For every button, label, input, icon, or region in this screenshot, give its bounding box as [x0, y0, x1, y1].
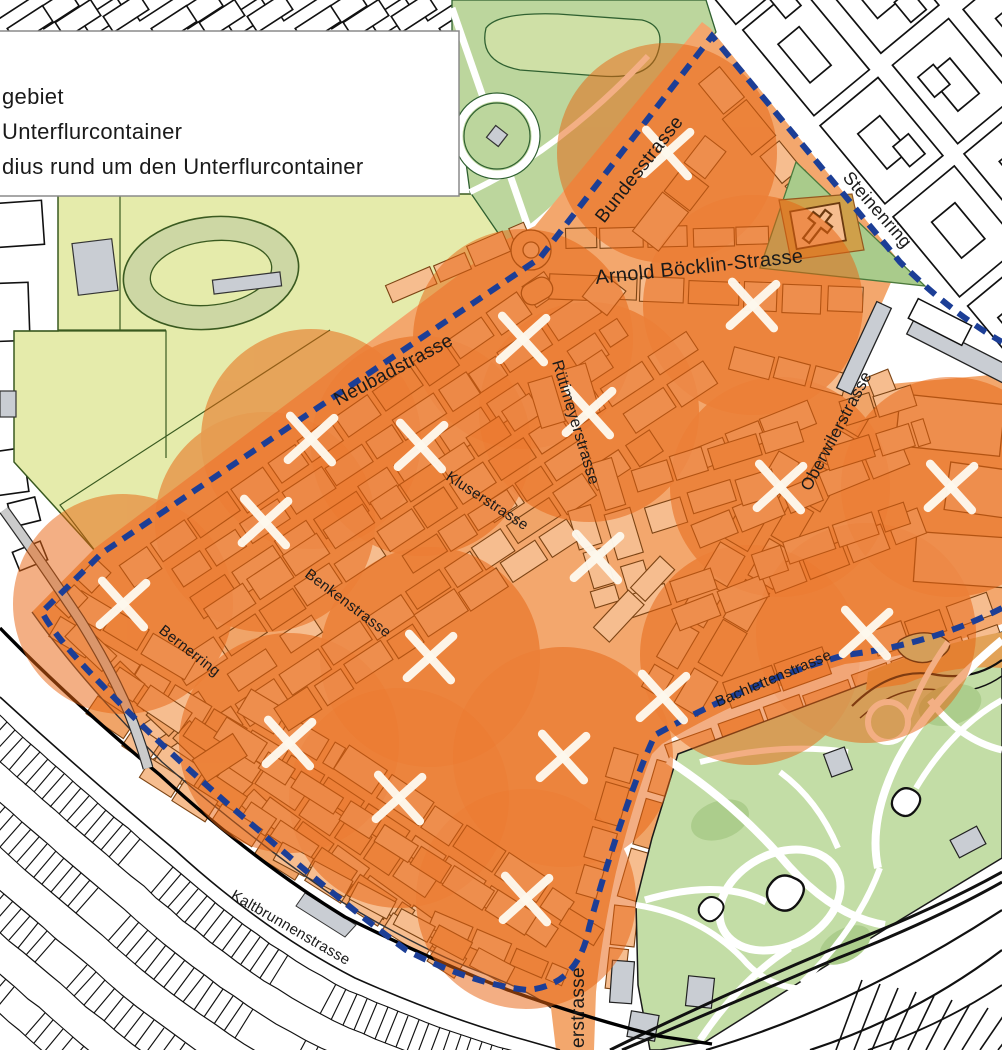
svg-text:erstrasse: erstrasse: [568, 967, 589, 1048]
svg-text:dius rund um den Unterflurcont: dius rund um den Unterflurcontainer: [2, 154, 363, 179]
svg-text:Unterflurcontainer: Unterflurcontainer: [2, 119, 182, 144]
svg-text:gebiet: gebiet: [2, 84, 64, 109]
